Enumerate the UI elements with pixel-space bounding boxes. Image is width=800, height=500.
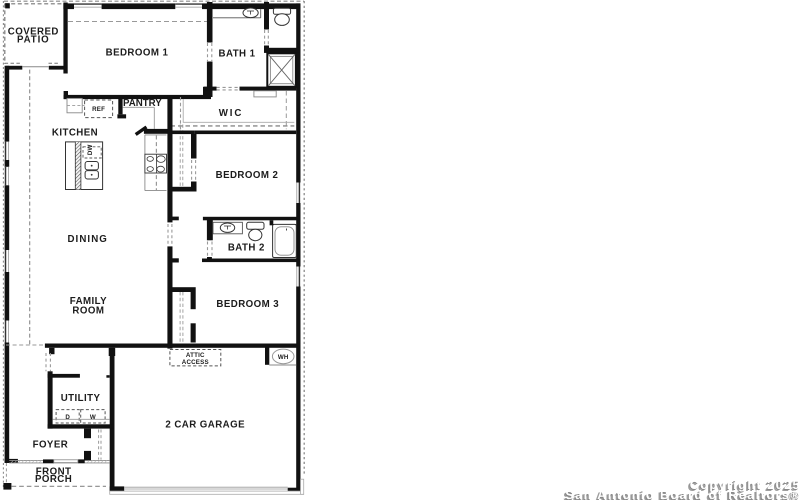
svg-text:WH: WH	[278, 354, 289, 361]
svg-text:UTILITY: UTILITY	[61, 393, 101, 404]
svg-text:BATH 1: BATH 1	[219, 49, 256, 60]
svg-text:2 CAR GARAGE: 2 CAR GARAGE	[165, 419, 245, 430]
svg-text:REF: REF	[92, 106, 105, 113]
svg-text:PORCH: PORCH	[35, 474, 72, 485]
svg-text:DW: DW	[87, 144, 94, 155]
svg-text:San Antonio Board of Realtors®: San Antonio Board of Realtors®	[565, 488, 800, 500]
svg-text:FOYER: FOYER	[33, 439, 69, 450]
svg-text:BEDROOM 1: BEDROOM 1	[106, 48, 169, 59]
svg-text:KITCHEN: KITCHEN	[52, 127, 98, 138]
svg-text:BEDROOM 3: BEDROOM 3	[216, 299, 279, 310]
svg-text:WIC: WIC	[219, 108, 244, 119]
svg-text:BATH 2: BATH 2	[228, 242, 265, 253]
svg-text:ACCESS: ACCESS	[182, 359, 209, 366]
svg-text:ROOM: ROOM	[72, 305, 104, 316]
svg-text:W: W	[90, 414, 96, 421]
svg-text:PATIO: PATIO	[17, 35, 50, 46]
svg-text:DINING: DINING	[67, 234, 108, 245]
svg-text:BEDROOM 2: BEDROOM 2	[216, 170, 279, 181]
svg-text:D: D	[65, 414, 70, 421]
